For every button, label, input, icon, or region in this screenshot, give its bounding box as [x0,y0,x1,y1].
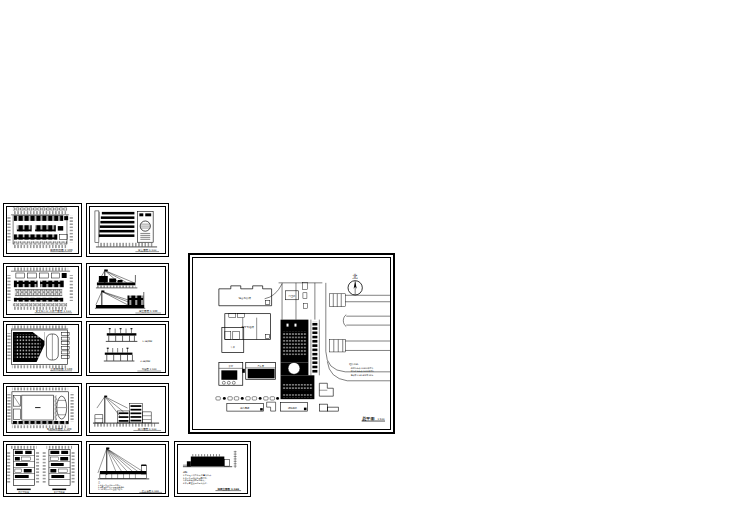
sheet-caption: 沿街立面图 1:100 [216,487,239,491]
sheet-caption: 背立面图 1:100 [138,248,157,252]
building-b-wing-label: 车库 [231,346,236,349]
elevation-1-graphic: 背立面图 1:100 [90,207,165,253]
sheet-floor-plan-4: 影剧院平面图 1:100 [3,383,82,436]
sheet-floor-plan-3: 三层平面图 1:100 [3,321,82,376]
site-plan-title: 总平面 [361,416,375,422]
section-1-graphic: 1-1剖面图 2-2剖面图 剖面图 1:100 [90,325,165,372]
sheet-caption: 底层平面图 1:100 [50,248,73,252]
sheet-site-plan: 北 [188,253,395,434]
elevation-3-graphic: 注: 1.外墙面采用浅色面砖饰面。 2.钢索及桅杆表面刷银色氟碳漆。 3.门窗均… [90,445,165,493]
site-plan-caption: 总平面 1:500 [361,416,385,422]
gate-house-label: 门卫房 [289,295,297,298]
sheet-caption: 某文化中心 二层平面图 1:100 [36,309,72,313]
sheet-caption: 纵剖面图 1:100 [138,427,157,431]
site-economic-indicators: 经济指标: 总建筑面积:10400平方米 建筑占地面积:3100平方米 容积率:… [349,362,374,376]
building-d: 临街商铺 [227,402,276,411]
street-strip [216,397,279,400]
site-plan-graphic: 北 [193,258,390,429]
cad-drawing-set-canvas: 底层平面图 1:100 某文化中心 二层平面图 1:100 [0,0,749,530]
north-label: 北 [353,273,358,280]
north-arrow-icon: 北 [348,273,362,295]
sheet-section-2: 纵剖面图 1:100 [86,383,169,436]
main-building [281,320,320,400]
building-e-label: 辅助用房 [288,407,298,410]
sheet-caption: 三层平面图 1:100 [50,367,72,371]
sheet-floor-plan-5: 四层平面图 五层平面图 [3,441,82,497]
building-c2: 汽车库 [246,362,276,379]
sheet-elevation-2: 侧立面图 1:100 [86,263,169,318]
floor-plan-1-graphic: 底层平面图 1:100 [7,207,78,253]
sheet-caption: 侧立面图 1:100 [139,309,158,313]
elevation-notes-line: 4.未尽事宜按现行规范执行。 [183,481,208,485]
corner-buildings [319,383,338,411]
sheet-caption: 正立面图 1:100 [142,489,159,493]
site-plan-scale: 1:500 [378,418,385,421]
building-c1: 食堂 [219,362,245,385]
building-a: 综合办公楼 [219,286,272,306]
elevation-2-graphic: 侧立面图 1:100 [90,267,165,314]
sheet-elevation-3: 注: 1.外墙面采用浅色面砖饰面。 2.钢索及桅杆表面刷银色氟碳漆。 3.门窗均… [86,441,169,497]
sheet-floor-plan-2: 某文化中心 二层平面图 1:100 [3,263,82,318]
building-c2-label: 汽车库 [257,365,265,368]
floor-plan-3-graphic: 三层平面图 1:100 [7,325,78,372]
section-2-graphic: 纵剖面图 1:100 [90,387,165,432]
sheet-caption: 影剧院平面图 1:100 [47,427,72,431]
building-d-label: 临街商铺 [240,407,250,410]
building-a-label: 综合办公楼 [239,296,252,300]
legend-line: 建筑占地面积:3100平方米 [350,369,374,373]
floor-plan-5-graphic: 四层平面图 五层平面图 [7,445,78,493]
sheet-elevation-4: 说明: 1.本图尺寸以毫米计,标高以米计。 2.屋面采用张拉膜钢索结构。 3.外… [174,441,251,497]
sheet-caption: 剖面图 1:100 [142,368,157,371]
sheet-caption-right: 五层平面图 [54,491,65,493]
sheet-caption-left: 四层平面图 [18,491,29,493]
building-b: 教学实验楼 车库 [222,314,271,353]
elevation-notes-line: 3.门窗均采用铝合金框白玻璃。 [98,488,124,491]
sheet-elevation-1: 背立面图 1:100 [86,203,169,257]
legend-line: 容积率:0.85 绿化率:35% [351,374,374,377]
section-caption-bottom: 2-2剖面图 [140,360,150,363]
floor-plan-2-graphic: 某文化中心 二层平面图 1:100 [7,267,78,314]
building-e: 辅助用房 [281,403,308,411]
elevation-4-graphic: 说明: 1.本图尺寸以毫米计,标高以米计。 2.屋面采用张拉膜钢索结构。 3.外… [178,445,247,493]
sheet-section-1: 1-1剖面图 2-2剖面图 剖面图 1:100 [86,321,169,376]
floor-plan-4-graphic: 影剧院平面图 1:100 [7,387,78,432]
section-caption-top: 1-1剖面图 [142,340,152,343]
building-c1-label: 食堂 [229,365,234,368]
sheet-floor-plan-1: 底层平面图 1:100 [3,203,82,257]
